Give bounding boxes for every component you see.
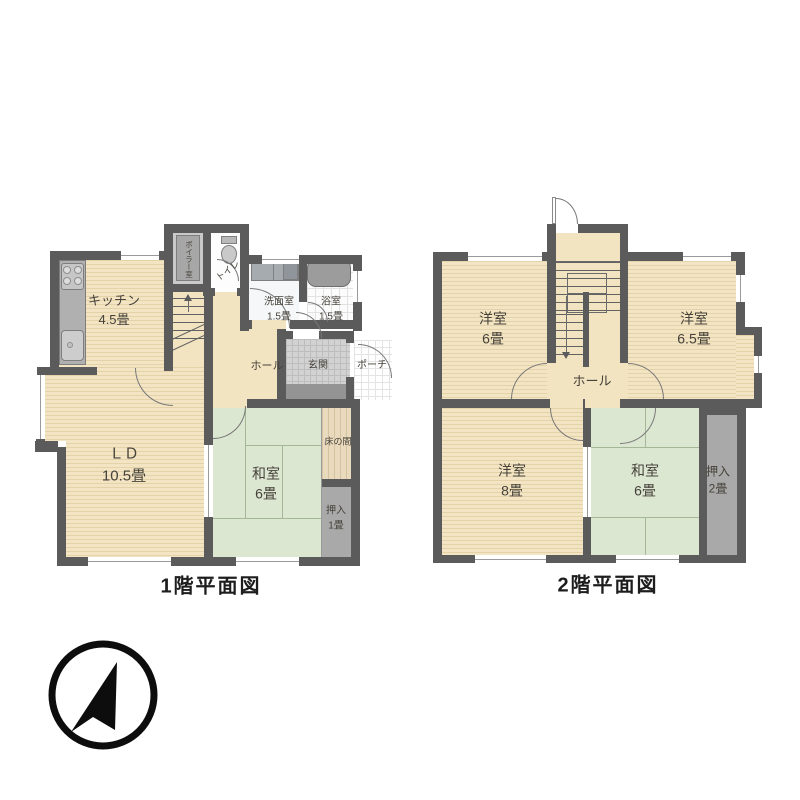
room-label-oshiire: 押入1畳 bbox=[326, 505, 346, 534]
decor: 1.5畳 bbox=[319, 310, 343, 325]
decor: ポーチ bbox=[357, 359, 387, 374]
room-label-yoshitsu65: 洋室6.5畳 bbox=[677, 309, 710, 350]
tatami-line bbox=[213, 518, 322, 519]
tatami-line bbox=[282, 445, 283, 518]
decor: ホール bbox=[572, 373, 611, 392]
room-label-washitsu: 和室6畳 bbox=[631, 461, 659, 502]
wall bbox=[204, 296, 213, 566]
decor: 6畳 bbox=[631, 481, 659, 501]
wall bbox=[247, 399, 360, 408]
wall bbox=[346, 377, 354, 400]
room-label-oshiire: 押入2畳 bbox=[706, 464, 730, 499]
wall bbox=[578, 224, 628, 233]
room-label-yoshitsu8: 洋室8畳 bbox=[498, 461, 526, 502]
room-label-living-dining: ＬＤ10.5畳 bbox=[102, 443, 146, 487]
window bbox=[736, 275, 745, 302]
wall bbox=[547, 224, 556, 363]
toilet-tank bbox=[221, 236, 237, 244]
wall bbox=[346, 331, 354, 343]
stairs-down-arrowhead bbox=[562, 352, 570, 359]
room-label-tokonoma: 床の間 bbox=[324, 435, 351, 448]
decor: キッチン bbox=[88, 292, 140, 311]
floorplan-canvas: キッチン4.5畳 ＬＤ10.5畳 和室6畳 押入1畳 床の間 トイレ ボイラー室… bbox=[0, 0, 800, 800]
room-label-washroom: 洗面室1.5畳 bbox=[264, 296, 294, 325]
decor: 洗面室 bbox=[264, 296, 294, 311]
decor: 洋室 bbox=[677, 309, 710, 329]
wall bbox=[57, 447, 66, 566]
window bbox=[475, 555, 546, 563]
stove-burner bbox=[74, 277, 82, 285]
decor: 和室 bbox=[252, 464, 280, 484]
stove-burner bbox=[63, 277, 71, 285]
wall bbox=[286, 331, 293, 339]
stairs-center-wall bbox=[583, 292, 589, 367]
window bbox=[36, 375, 45, 439]
decor: 押入 bbox=[706, 464, 730, 481]
decor: 和室 bbox=[631, 461, 659, 481]
wall bbox=[203, 288, 215, 296]
window bbox=[121, 251, 159, 260]
living-dining-bay-floor bbox=[45, 375, 66, 441]
sliding-door bbox=[204, 445, 213, 517]
wall bbox=[699, 407, 737, 415]
wall bbox=[351, 399, 360, 566]
room-label-hall: ホール bbox=[251, 359, 284, 375]
decor: 押入 bbox=[326, 505, 346, 520]
decor: 2畳 bbox=[706, 481, 730, 498]
sink-drain bbox=[67, 342, 73, 348]
window bbox=[88, 557, 171, 566]
wall bbox=[736, 327, 762, 335]
room-label-boiler: ボイラー室 bbox=[183, 240, 194, 278]
wall bbox=[37, 367, 97, 375]
stove-burner bbox=[74, 266, 82, 274]
door-arc bbox=[556, 198, 578, 224]
wall bbox=[620, 399, 762, 408]
room-label-washitsu: 和室6畳 bbox=[252, 464, 280, 505]
stairs-up-arrowhead bbox=[184, 294, 192, 301]
stairs-up-arrow bbox=[188, 300, 189, 312]
tatami-line bbox=[591, 447, 699, 448]
wall bbox=[35, 441, 58, 452]
decor: 6畳 bbox=[252, 484, 280, 504]
wall bbox=[164, 224, 173, 371]
wall bbox=[547, 224, 554, 233]
window bbox=[262, 255, 299, 264]
north-arrow-icon bbox=[44, 636, 162, 754]
wall bbox=[620, 224, 628, 363]
room-label-kitchen: キッチン4.5畳 bbox=[88, 292, 140, 330]
window bbox=[236, 557, 299, 566]
wall bbox=[583, 399, 585, 408]
wall bbox=[322, 479, 351, 487]
wall bbox=[299, 264, 307, 302]
decor: 1畳 bbox=[326, 519, 346, 534]
window bbox=[754, 356, 762, 373]
room-label-bathroom: 浴室1.5畳 bbox=[319, 296, 343, 325]
floor1-title: 1階平面図 bbox=[160, 570, 261, 599]
yoshitsu65-bay-floor bbox=[736, 335, 754, 399]
tatami-line bbox=[645, 517, 646, 555]
wall bbox=[737, 408, 746, 563]
tatami-line bbox=[245, 408, 246, 518]
wall bbox=[433, 399, 550, 408]
genkan-step bbox=[286, 384, 350, 400]
wall bbox=[237, 288, 249, 296]
stairs-treads bbox=[556, 314, 586, 360]
room-label-yoshitsu6: 洋室6畳 bbox=[479, 309, 507, 350]
decor: 洋室 bbox=[479, 309, 507, 329]
tatami-line bbox=[245, 445, 322, 446]
room-label-porch: ポーチ bbox=[357, 359, 387, 374]
window bbox=[683, 252, 731, 261]
decor: 8畳 bbox=[498, 481, 526, 501]
decor: 6.5畳 bbox=[677, 329, 710, 349]
stairs-down-arrow bbox=[566, 296, 567, 352]
stove-burner bbox=[63, 266, 71, 274]
window bbox=[353, 271, 362, 302]
decor: 6畳 bbox=[479, 329, 507, 349]
wall bbox=[240, 224, 249, 331]
decor: 10.5畳 bbox=[102, 465, 146, 487]
decor: ＬＤ bbox=[102, 443, 146, 465]
wall bbox=[50, 251, 59, 371]
decor: 4.5畳 bbox=[88, 311, 140, 330]
decor: 玄関 bbox=[308, 359, 328, 374]
room-label-genkan: 玄関 bbox=[308, 359, 328, 374]
sliding-door bbox=[583, 447, 591, 517]
floor2-title: 2階平面図 bbox=[557, 569, 658, 598]
window bbox=[616, 555, 679, 563]
decor: 洋室 bbox=[498, 461, 526, 481]
window bbox=[468, 252, 542, 261]
decor: ボイラー室 bbox=[183, 240, 194, 278]
decor: ホール bbox=[251, 359, 284, 375]
decor: 床の間 bbox=[324, 435, 351, 448]
wall bbox=[164, 224, 249, 233]
room-label-hall: ホール bbox=[572, 373, 611, 392]
decor: 1.5畳 bbox=[264, 310, 294, 325]
decor: 浴室 bbox=[319, 296, 343, 311]
